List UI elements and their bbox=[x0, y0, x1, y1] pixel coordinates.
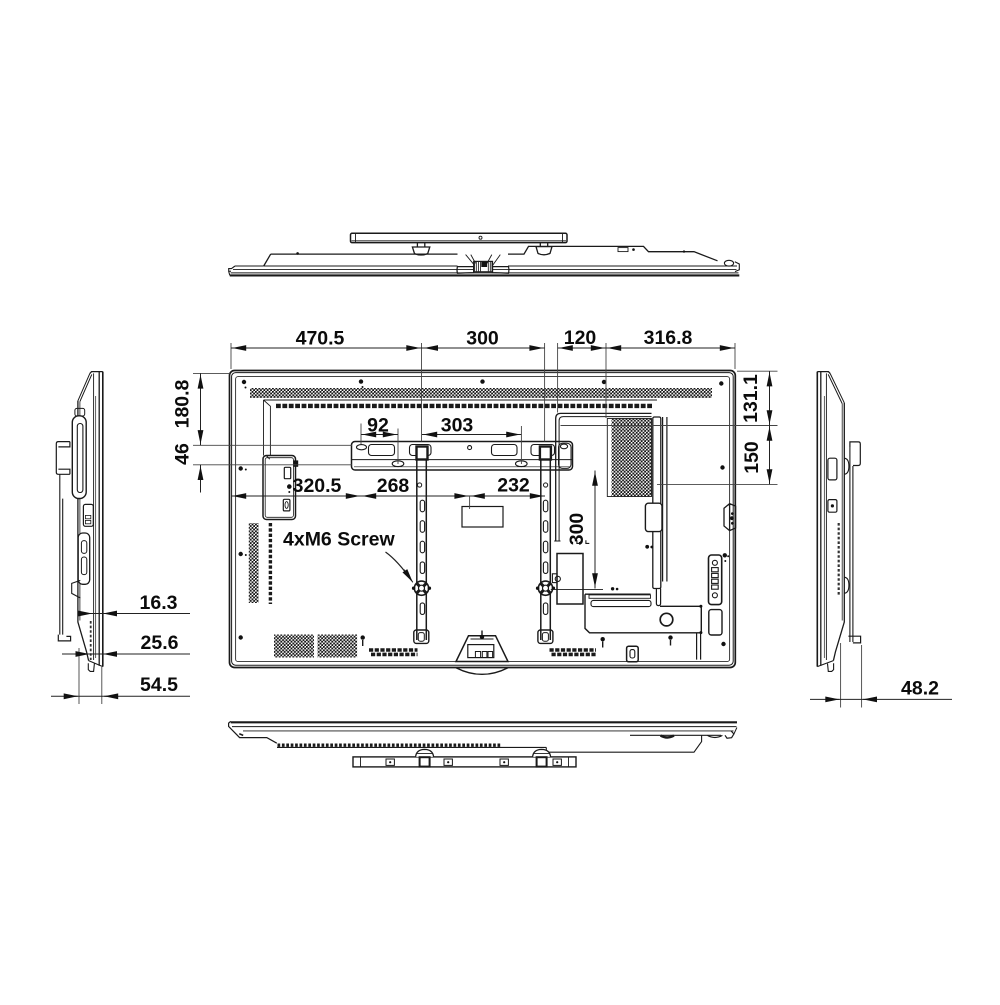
svg-text:300: 300 bbox=[466, 328, 499, 350]
svg-text:303: 303 bbox=[441, 415, 474, 437]
svg-text:131.1: 131.1 bbox=[740, 374, 762, 423]
svg-text:120: 120 bbox=[564, 327, 597, 349]
svg-text:232: 232 bbox=[497, 474, 530, 496]
svg-text:16.3: 16.3 bbox=[140, 592, 178, 614]
svg-text:92: 92 bbox=[367, 415, 389, 437]
svg-text:48.2: 48.2 bbox=[901, 678, 939, 700]
svg-text:316.8: 316.8 bbox=[644, 327, 693, 349]
svg-text:54.5: 54.5 bbox=[140, 674, 178, 696]
svg-text:300: 300 bbox=[566, 513, 588, 546]
svg-text:150: 150 bbox=[741, 441, 763, 474]
svg-text:46: 46 bbox=[172, 443, 194, 465]
svg-text:268: 268 bbox=[377, 475, 410, 497]
svg-text:4xM6 Screw: 4xM6 Screw bbox=[283, 529, 395, 551]
svg-text:180.8: 180.8 bbox=[172, 379, 194, 428]
svg-text:25.6: 25.6 bbox=[141, 632, 179, 654]
svg-text:470.5: 470.5 bbox=[296, 328, 345, 350]
svg-text:320.5: 320.5 bbox=[293, 475, 342, 497]
